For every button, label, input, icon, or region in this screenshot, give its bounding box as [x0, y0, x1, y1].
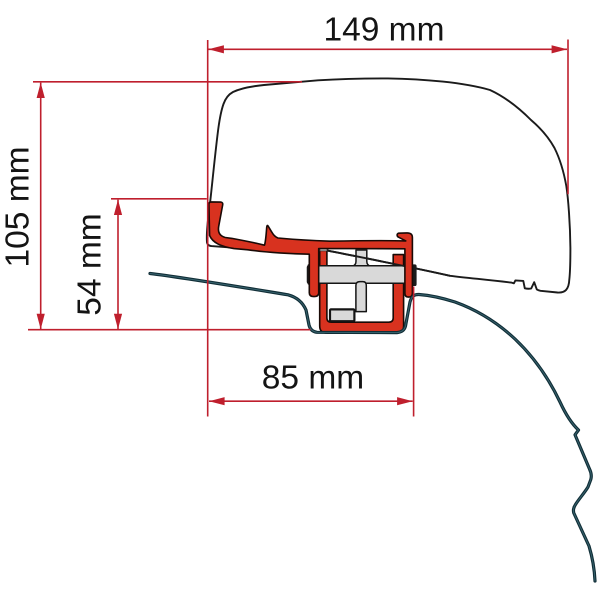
- svg-text:149 mm: 149 mm: [323, 12, 444, 49]
- svg-text:85 mm: 85 mm: [262, 360, 364, 397]
- svg-text:54 mm: 54 mm: [72, 213, 109, 315]
- svg-text:105 mm: 105 mm: [0, 146, 37, 267]
